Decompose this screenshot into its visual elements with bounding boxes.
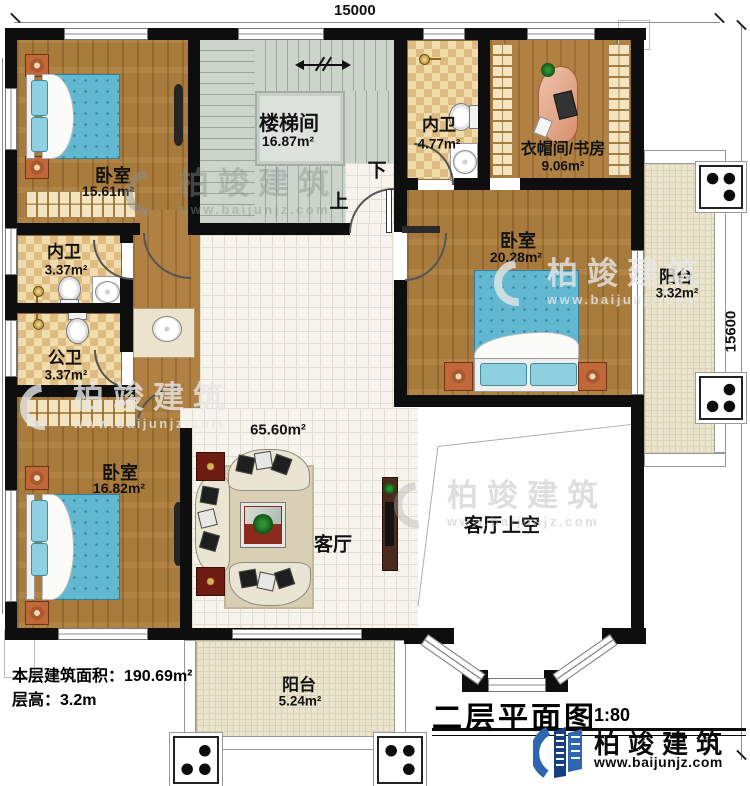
room-label-bath-public: 公卫 bbox=[48, 348, 82, 367]
bay-window bbox=[488, 678, 546, 692]
balcony-railing bbox=[394, 640, 406, 738]
void-outline bbox=[438, 424, 633, 447]
sink-icon bbox=[152, 316, 182, 342]
room-label-cloak-study: 衣帽间/书房 bbox=[521, 141, 605, 159]
room-area-bath-public: 3.37m² bbox=[45, 367, 88, 382]
nightstand bbox=[25, 601, 49, 625]
brand-url: www.baijunjz.com bbox=[594, 754, 723, 770]
room-area-stairwell: 16.87m² bbox=[262, 134, 314, 150]
dimension-top: 15000 bbox=[334, 2, 376, 19]
balcony-slider-door bbox=[232, 629, 362, 639]
wall bbox=[520, 178, 631, 190]
room-label-balcony-bottom: 阳台 bbox=[282, 675, 316, 694]
sofa-pillow bbox=[239, 569, 259, 589]
bay-window bbox=[553, 634, 618, 685]
wall bbox=[631, 404, 644, 640]
nightstand bbox=[25, 466, 49, 490]
window bbox=[5, 88, 17, 150]
stair-treads bbox=[345, 91, 394, 163]
column-marker bbox=[377, 736, 423, 784]
sofa-pillow bbox=[200, 486, 220, 506]
plant-icon bbox=[253, 514, 273, 534]
towel-knob bbox=[33, 286, 44, 297]
wardrobe bbox=[608, 44, 630, 178]
toilet-icon bbox=[66, 318, 89, 344]
room-label-bedroom-right: 卧室 bbox=[500, 231, 536, 251]
floor-area-info: 本层建筑面积：190.69m² bbox=[12, 662, 193, 686]
wall bbox=[5, 303, 120, 313]
wall bbox=[5, 385, 135, 397]
column-marker bbox=[699, 376, 743, 420]
towel-knob bbox=[33, 319, 44, 330]
wall bbox=[5, 223, 140, 235]
nightstand bbox=[444, 362, 473, 391]
wall bbox=[180, 428, 192, 628]
column-marker bbox=[173, 736, 219, 784]
room-label-balcony-right: 阳台 bbox=[659, 267, 693, 286]
watermark-brand: 柏竣建筑 bbox=[447, 480, 607, 511]
window bbox=[64, 28, 148, 40]
stair-down-label: 下 bbox=[367, 160, 386, 181]
window bbox=[5, 490, 17, 602]
wardrobe bbox=[492, 44, 513, 178]
pillow bbox=[31, 500, 48, 542]
window bbox=[58, 628, 148, 640]
room-area-bedroom-bottomleft: 16.82m² bbox=[93, 481, 145, 497]
sink-icon bbox=[453, 150, 477, 174]
floor-plan-canvas: 15000 15600 bbox=[0, 0, 750, 786]
nightstand bbox=[578, 362, 607, 391]
towel-knob bbox=[419, 54, 430, 65]
wall bbox=[188, 28, 200, 235]
void-outline bbox=[418, 447, 439, 607]
dimension-right: 15600 bbox=[723, 302, 740, 362]
door-leaf bbox=[402, 226, 440, 233]
wall bbox=[394, 395, 644, 407]
room-label-bath-mid: 内卫 bbox=[47, 242, 81, 261]
pillow bbox=[530, 363, 577, 386]
nightstand bbox=[25, 156, 49, 179]
sofa-pillow bbox=[235, 454, 255, 474]
plant-icon bbox=[384, 483, 395, 494]
pillow bbox=[31, 117, 48, 152]
wall bbox=[394, 280, 407, 407]
room-area-bath-mid: 3.37m² bbox=[45, 262, 88, 277]
pillow bbox=[31, 80, 48, 116]
balcony-railing bbox=[184, 640, 196, 738]
room-area-living: 65.60m² bbox=[250, 423, 306, 440]
plant-icon bbox=[541, 63, 555, 77]
wall bbox=[454, 178, 478, 190]
column-marker bbox=[699, 165, 743, 209]
stair-direction-line bbox=[301, 64, 345, 66]
pillow bbox=[31, 543, 48, 576]
wall bbox=[120, 278, 133, 352]
door-leaf bbox=[386, 189, 392, 233]
wall bbox=[200, 223, 350, 235]
window bbox=[5, 320, 17, 377]
room-label-stairwell: 楼梯间 bbox=[259, 113, 319, 135]
wall bbox=[394, 28, 407, 232]
room-area-cloak-study: 9.06m² bbox=[542, 158, 585, 173]
room-area-balcony-bottom: 5.24m² bbox=[279, 693, 322, 708]
stair-up-label: 上 bbox=[329, 191, 348, 212]
room-label-living: 客厅 bbox=[314, 534, 352, 555]
room-area-balcony-right: 3.32m² bbox=[656, 285, 699, 300]
brand-logo-icon bbox=[533, 718, 591, 782]
stair-treads bbox=[200, 40, 255, 223]
wardrobe bbox=[24, 399, 137, 427]
balcony-railing bbox=[644, 453, 726, 467]
room-label-living-void: 客厅上空 bbox=[464, 515, 540, 536]
balcony-railing bbox=[644, 150, 726, 164]
room-area-bedroom-right: 20.28m² bbox=[490, 250, 542, 266]
stair-arrow-icon bbox=[295, 60, 304, 70]
dimension-line-top bbox=[14, 22, 720, 23]
eave-line-left bbox=[2, 58, 3, 614]
title-scale: 1:80 bbox=[594, 705, 630, 726]
wall bbox=[478, 28, 490, 190]
side-table bbox=[196, 567, 225, 596]
room-label-bath-top: 内卫 bbox=[422, 115, 456, 134]
balcony-slider-door bbox=[631, 250, 644, 395]
sink-icon bbox=[95, 281, 120, 303]
floor-hall-main bbox=[200, 223, 394, 408]
window bbox=[238, 28, 324, 40]
window bbox=[5, 228, 17, 275]
room-area-bedroom-topleft: 15.61m² bbox=[82, 184, 134, 200]
tv bbox=[385, 502, 394, 546]
tv bbox=[174, 84, 183, 146]
window bbox=[423, 28, 465, 40]
stair-arrow-icon bbox=[342, 60, 351, 70]
window bbox=[527, 28, 595, 40]
floor-height-info: 层高：3.2m bbox=[12, 686, 96, 710]
side-table bbox=[196, 452, 225, 481]
room-area-bath-top: 4.77m² bbox=[418, 136, 461, 151]
pillow bbox=[480, 363, 527, 386]
